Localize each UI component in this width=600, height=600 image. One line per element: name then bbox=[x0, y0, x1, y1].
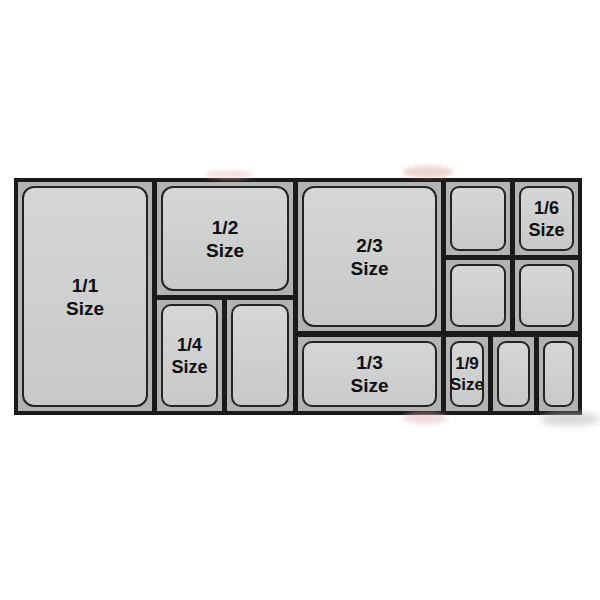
pan-size-diagram: 1/1 Size 1/2 Size 1/4 Size bbox=[0, 0, 600, 600]
pan-1-1-fraction: 1/1 bbox=[72, 274, 98, 297]
pan-1-6: 1/6 Size bbox=[519, 186, 574, 251]
pan-1-1: 1/1 Size bbox=[22, 186, 148, 407]
pan-1-3-word: Size bbox=[350, 374, 388, 397]
pan-1-9-unlabeled-1 bbox=[497, 341, 530, 407]
pan-2-3-word: Size bbox=[350, 257, 388, 280]
pan-1-3: 1/3 Size bbox=[302, 341, 437, 407]
cell-1-9-unlabeled-1 bbox=[493, 337, 534, 411]
pan-1-3-label: 1/3 Size bbox=[350, 351, 388, 397]
pan-1-6-unlabeled-3 bbox=[519, 264, 574, 327]
cell-1-4-labeled: 1/4 Size bbox=[157, 300, 222, 411]
cell-1-4-unlabeled bbox=[227, 300, 293, 411]
cell-1-3: 1/3 Size bbox=[298, 337, 441, 411]
pan-2-3-fraction: 2/3 bbox=[356, 234, 382, 257]
pan-2-3-label: 2/3 Size bbox=[350, 234, 388, 280]
pan-1-1-label: 1/1 Size bbox=[66, 274, 104, 320]
pan-1-6-unlabeled-2 bbox=[450, 264, 506, 327]
pan-1-4-word: Size bbox=[171, 356, 207, 378]
cell-1-6-unlabeled-3 bbox=[515, 260, 578, 331]
pan-1-1-word: Size bbox=[66, 297, 104, 320]
pan-1-9-unlabeled-2 bbox=[543, 341, 574, 407]
pan-1-9-fraction: 1/9 bbox=[455, 353, 479, 374]
gastronorm-grid-frame: 1/1 Size 1/2 Size 1/4 Size bbox=[14, 178, 582, 415]
artifact-smudge-top-right bbox=[403, 166, 453, 178]
pan-1-6-fraction: 1/6 bbox=[534, 197, 559, 219]
cell-1-2: 1/2 Size bbox=[157, 182, 293, 295]
cell-1-6-labeled: 1/6 Size bbox=[515, 182, 578, 255]
pan-1-4-label: 1/4 Size bbox=[171, 334, 207, 378]
pan-1-6-label: 1/6 Size bbox=[528, 197, 564, 241]
pan-1-4: 1/4 Size bbox=[161, 304, 218, 407]
pan-1-9: 1/9 Size bbox=[450, 341, 484, 407]
pan-1-4-unlabeled bbox=[231, 304, 289, 407]
pan-1-4-fraction: 1/4 bbox=[177, 334, 202, 356]
pan-1-9-word: Size bbox=[450, 374, 484, 395]
pan-1-6-word: Size bbox=[528, 219, 564, 241]
pan-1-3-fraction: 1/3 bbox=[356, 351, 382, 374]
cell-1-6-unlabeled-2 bbox=[446, 260, 510, 331]
pan-1-6-unlabeled-1 bbox=[450, 186, 506, 251]
pan-1-2-label: 1/2 Size bbox=[206, 216, 244, 262]
pan-2-3: 2/3 Size bbox=[302, 186, 437, 327]
pan-1-2-fraction: 1/2 bbox=[212, 216, 238, 239]
cell-2-3: 2/3 Size bbox=[298, 182, 441, 331]
pan-1-2: 1/2 Size bbox=[161, 186, 289, 291]
cell-1-6-unlabeled-1 bbox=[446, 182, 510, 255]
cell-1-9-unlabeled-2 bbox=[539, 337, 578, 411]
pan-1-9-label: 1/9 Size bbox=[450, 353, 484, 395]
cell-1-1: 1/1 Size bbox=[18, 182, 152, 411]
pan-1-2-word: Size bbox=[206, 239, 244, 262]
cell-1-9-labeled: 1/9 Size bbox=[446, 337, 488, 411]
